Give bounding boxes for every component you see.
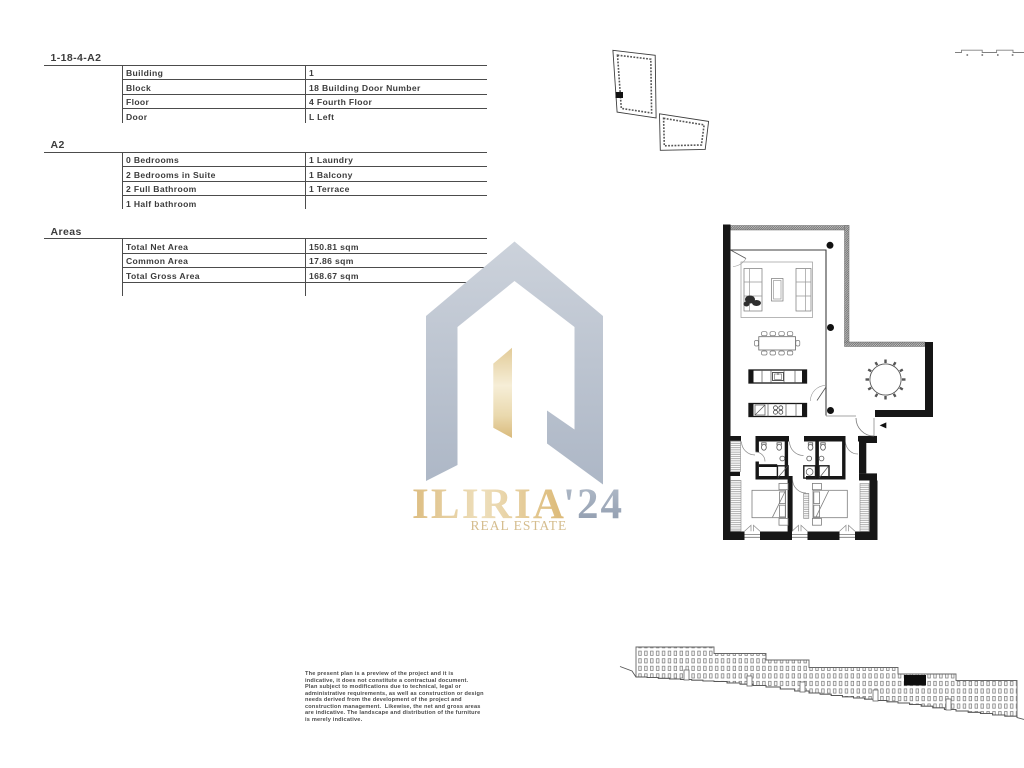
svg-text:REAL ESTATE: REAL ESTATE [471, 518, 568, 533]
svg-text:'24: '24 [563, 481, 624, 528]
